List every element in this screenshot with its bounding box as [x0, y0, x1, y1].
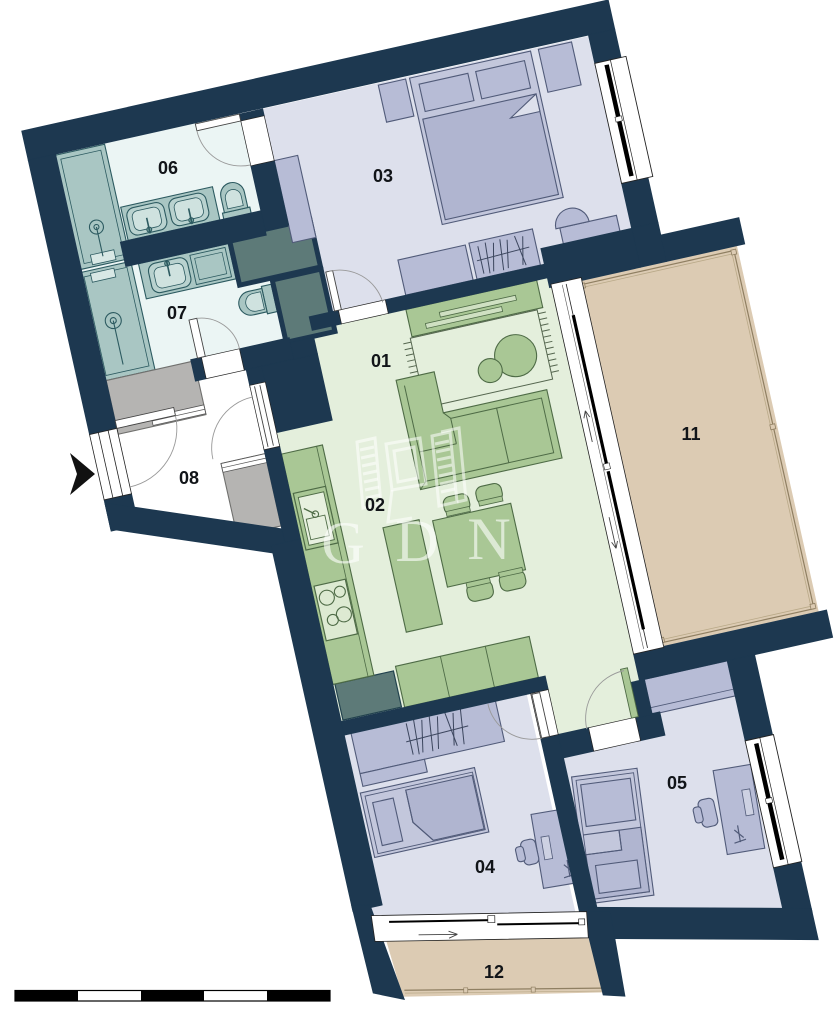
- svg-text:08: 08: [179, 468, 199, 488]
- svg-text:05: 05: [667, 773, 687, 793]
- svg-text:12: 12: [484, 962, 504, 982]
- svg-text:D: D: [395, 508, 438, 574]
- svg-text:11: 11: [681, 424, 700, 444]
- svg-text:01: 01: [371, 351, 391, 371]
- svg-text:G: G: [321, 510, 364, 576]
- svg-text:02: 02: [365, 495, 385, 515]
- svg-text:06: 06: [158, 158, 178, 178]
- svg-text:03: 03: [373, 166, 393, 186]
- svg-text:04: 04: [475, 857, 495, 877]
- svg-text:07: 07: [167, 303, 187, 323]
- svg-text:N: N: [467, 506, 510, 572]
